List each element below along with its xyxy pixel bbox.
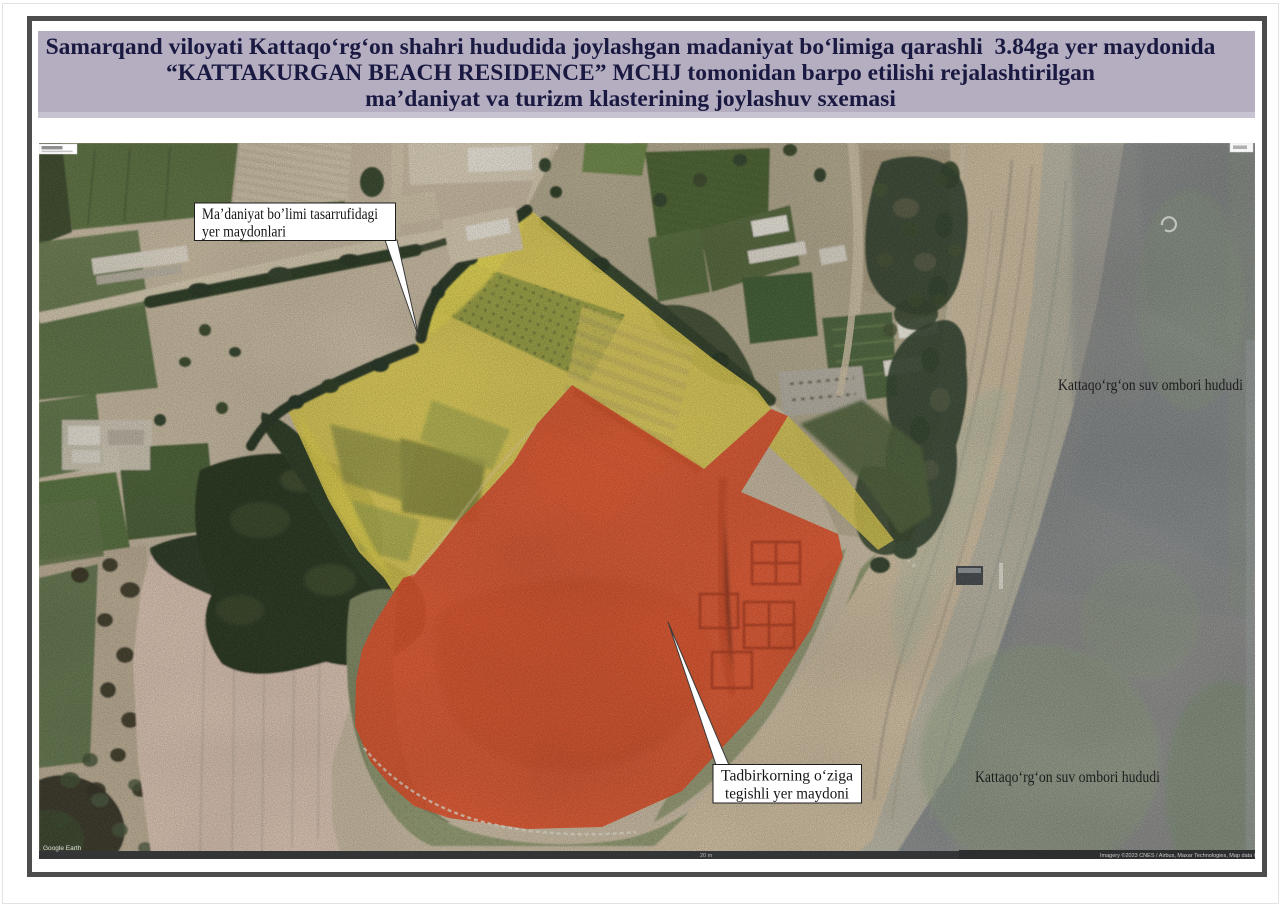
svg-text:Ma’daniyat bo’limi tasarrufida: Ma’daniyat bo’limi tasarrufidagi xyxy=(202,206,378,223)
svg-text:Imagery ©2023 CNES / Airbus, M: Imagery ©2023 CNES / Airbus, Maxar Techn… xyxy=(1100,852,1255,859)
svg-text:Kattaqo‘rg‘on suv ombori hudud: Kattaqo‘rg‘on suv ombori hududi xyxy=(975,769,1161,786)
svg-text:Kattaqo‘rg‘on suv ombori hudud: Kattaqo‘rg‘on suv ombori hududi xyxy=(1058,377,1244,394)
svg-text:20 m: 20 m xyxy=(700,853,713,859)
svg-text:Google Earth: Google Earth xyxy=(43,845,82,852)
svg-text:Tadbirkorning o‘ziga: Tadbirkorning o‘ziga xyxy=(721,768,853,785)
svg-text:yer maydonlari: yer maydonlari xyxy=(202,224,286,241)
svg-text:tegishli yer maydoni: tegishli yer maydoni xyxy=(725,786,850,803)
